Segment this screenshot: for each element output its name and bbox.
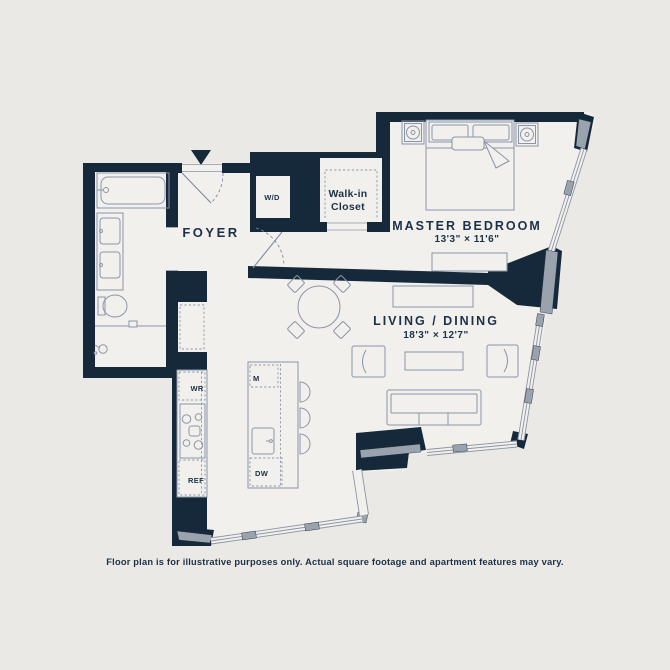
master-bedroom-dimensions: 13'3" × 11'6" [435, 234, 500, 245]
foyer-label: FOYER [182, 225, 239, 240]
bed [426, 120, 514, 210]
master-bedroom-label: MASTER BEDROOM [392, 219, 542, 233]
dishwasher-label: DW [255, 469, 269, 478]
disclaimer-text: Floor plan is for illustrative purposes … [106, 557, 563, 567]
wine-fridge-label: WR [190, 384, 203, 393]
floor-plan-page: FOYER W/D Walk-in Closet MASTER BEDROOM … [0, 0, 670, 670]
refrigerator-label: REF [188, 476, 204, 485]
bathroom-floor [95, 172, 166, 367]
living-dining-label: LIVING / DINING [373, 314, 499, 328]
living-dining-dimensions: 18'3" × 12'7" [403, 330, 469, 341]
walk-in-label-line2: Closet [331, 201, 365, 213]
bathroom-door-opening [166, 227, 178, 271]
walk-in-label-line1: Walk-in [328, 188, 367, 200]
microwave-label: M [253, 374, 260, 383]
media-console [393, 286, 473, 307]
wd-label: W/D [264, 193, 280, 202]
walk-in-closet-door-opening [327, 222, 367, 232]
bedroom-dresser [432, 253, 507, 271]
floor-plan-canvas: FOYER W/D Walk-in Closet MASTER BEDROOM … [0, 0, 670, 670]
folded-blanket [452, 137, 484, 150]
